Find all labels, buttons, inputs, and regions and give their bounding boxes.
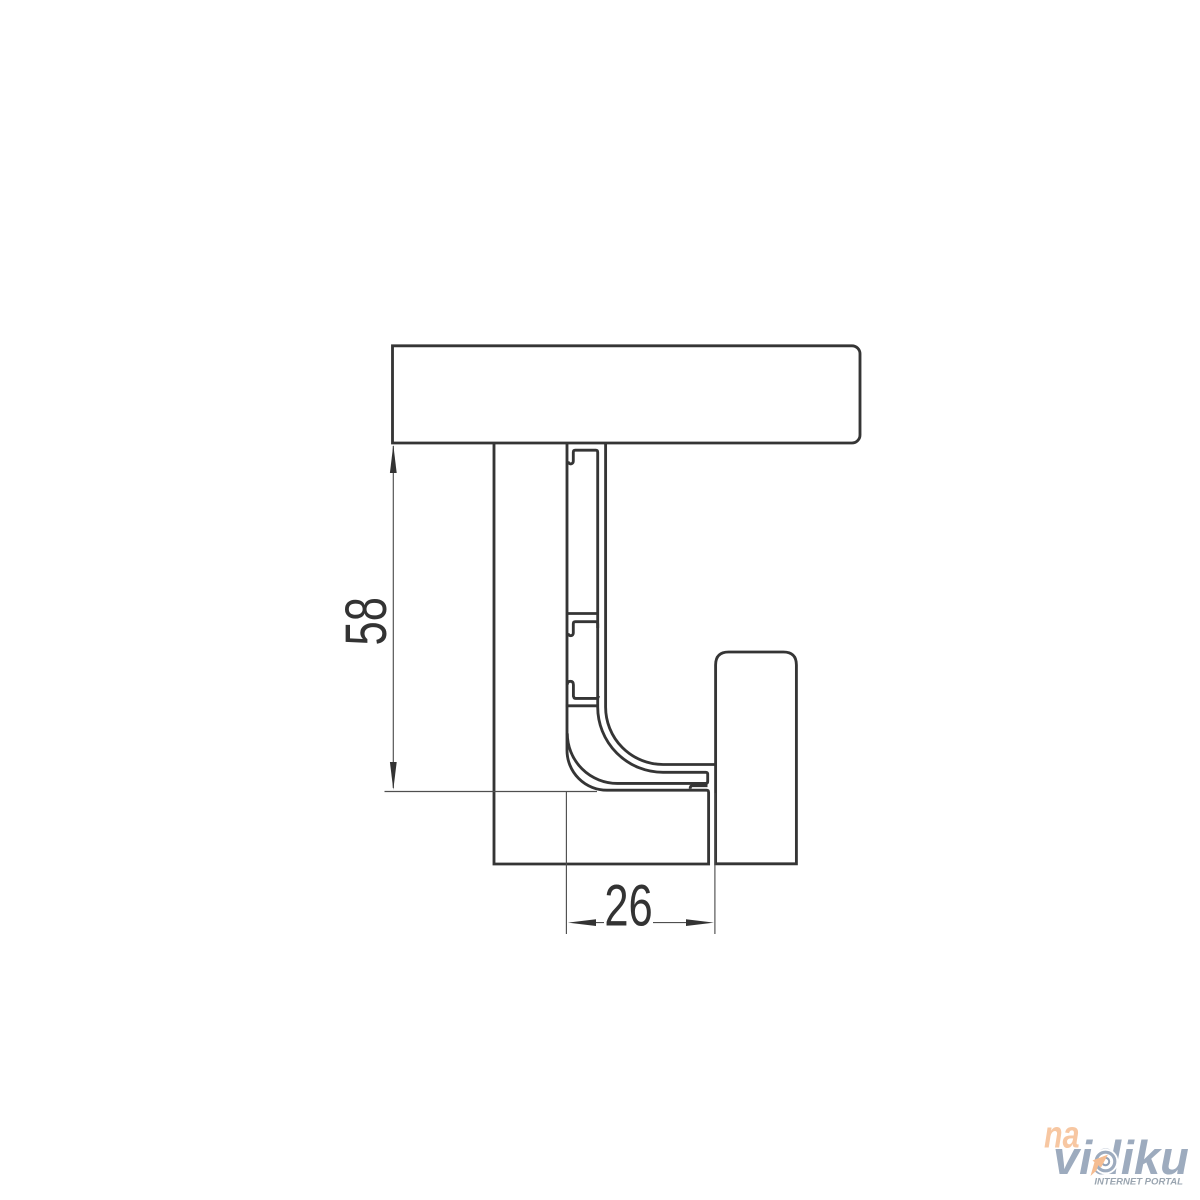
svg-text:58: 58 bbox=[334, 597, 398, 645]
svg-text:26: 26 bbox=[604, 873, 652, 937]
svg-text:INTERNET PORTAL: INTERNET PORTAL bbox=[1094, 1177, 1183, 1188]
